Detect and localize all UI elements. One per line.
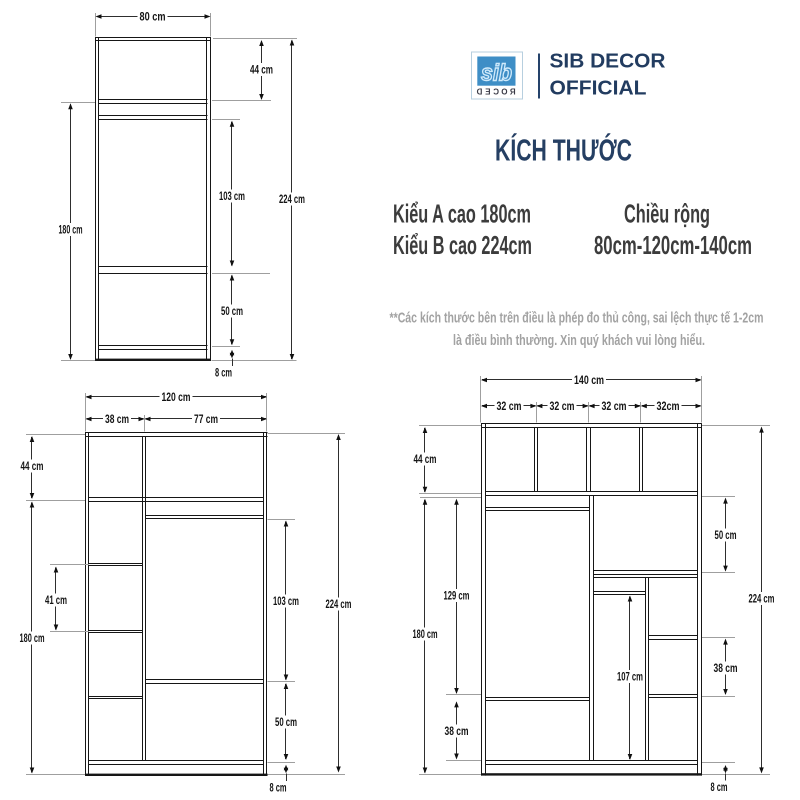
svg-text:41 cm: 41 cm: [45, 595, 67, 607]
svg-text:8 cm: 8 cm: [711, 782, 728, 794]
svg-text:8 cm: 8 cm: [215, 368, 232, 380]
svg-text:180 cm: 180 cm: [413, 629, 438, 641]
svg-text:38 cm: 38 cm: [714, 663, 738, 675]
svg-text:SIB DECOR: SIB DECOR: [550, 51, 667, 73]
svg-text:OFFICIAL: OFFICIAL: [550, 78, 647, 100]
svg-text:KÍCH THƯỚC: KÍCH THƯỚC: [495, 132, 632, 168]
svg-text:224 cm: 224 cm: [326, 599, 352, 611]
svg-text:Chiều rộng: Chiều rộng: [624, 199, 710, 229]
svg-text:O: O: [501, 88, 507, 97]
svg-text:44 cm: 44 cm: [250, 65, 273, 77]
svg-text:38 cm: 38 cm: [445, 726, 469, 738]
svg-text:Kiểu A cao 180cm: Kiểu A cao 180cm: [393, 199, 531, 229]
svg-text:**Các kích thước bên trên điều: **Các kích thước bên trên điều là phép đ…: [390, 310, 764, 327]
svg-text:38 cm: 38 cm: [105, 414, 129, 426]
svg-text:50 cm: 50 cm: [275, 717, 297, 729]
svg-text:là điều bình thường. Xin quý k: là điều bình thường. Xin quý khách vui l…: [453, 332, 705, 349]
svg-text:103 cm: 103 cm: [273, 596, 299, 608]
svg-text:C: C: [493, 88, 499, 97]
svg-text:180 cm: 180 cm: [20, 633, 45, 645]
svg-text:120 cm: 120 cm: [162, 392, 191, 404]
svg-text:180 cm: 180 cm: [59, 225, 83, 237]
svg-text:50 cm: 50 cm: [221, 306, 243, 318]
svg-text:32 cm: 32 cm: [602, 401, 627, 413]
svg-text:44 cm: 44 cm: [21, 461, 44, 473]
svg-text:224 cm: 224 cm: [749, 594, 775, 606]
svg-text:140 cm: 140 cm: [574, 375, 604, 387]
svg-text:Kiểu B cao 224cm: Kiểu B cao 224cm: [393, 230, 532, 260]
svg-text:D: D: [476, 88, 482, 97]
svg-text:103 cm: 103 cm: [219, 191, 245, 203]
svg-text:50 cm: 50 cm: [715, 530, 737, 542]
svg-text:107 cm: 107 cm: [617, 672, 643, 684]
svg-text:8 cm: 8 cm: [270, 783, 287, 795]
svg-text:R: R: [510, 88, 516, 97]
svg-text:sib: sib: [481, 60, 512, 86]
svg-text:32 cm: 32 cm: [550, 401, 575, 413]
svg-text:E: E: [484, 88, 490, 97]
svg-text:77 cm: 77 cm: [194, 414, 218, 426]
svg-text:80 cm: 80 cm: [140, 12, 166, 24]
svg-text:32 cm: 32 cm: [497, 401, 522, 413]
svg-text:32cm: 32cm: [657, 401, 680, 413]
svg-text:80cm-120cm-140cm: 80cm-120cm-140cm: [594, 230, 752, 260]
svg-text:224 cm: 224 cm: [279, 194, 305, 206]
svg-text:129 cm: 129 cm: [444, 591, 470, 603]
svg-text:44 cm: 44 cm: [414, 454, 437, 466]
